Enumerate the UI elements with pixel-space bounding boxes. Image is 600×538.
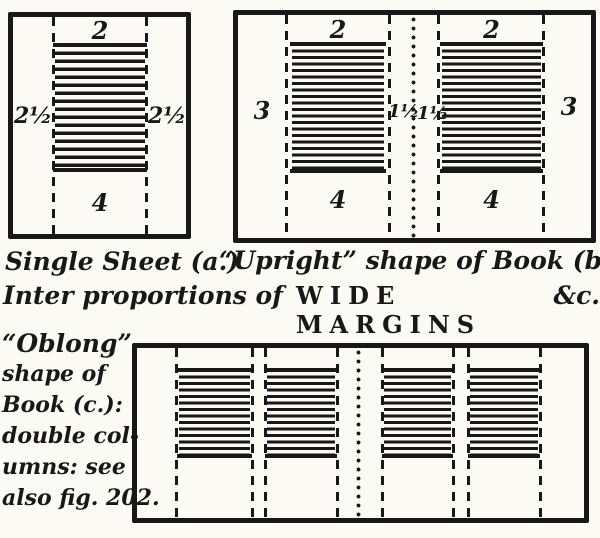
margin-value-bottom: 4	[53, 191, 147, 215]
spine-fold-dotted-line	[411, 15, 416, 238]
margin-value-outer-right: 3	[547, 95, 591, 119]
margin-value-outer-left: 3	[240, 99, 284, 123]
book-page: 2 2½ 2½ 4 2 2 3 3 1½ 1½ 4 4 Single Sheet…	[0, 0, 600, 538]
note-line: umns: see	[2, 452, 132, 483]
caption-wide-margins: WIDE MARGINS	[296, 281, 541, 339]
margin-value-top-right-page: 2	[440, 18, 543, 42]
spine-fold-dotted-line	[356, 348, 361, 518]
diagram-single-sheet: 2 2½ 2½ 4	[8, 12, 191, 239]
note-line: Book (c.):	[2, 390, 132, 421]
margin-value-top-left-page: 2	[290, 18, 386, 42]
diagram-oblong-book	[132, 343, 589, 523]
text-block-hatch-left-page	[290, 42, 386, 173]
column-hatch-3	[382, 368, 453, 458]
note-line: “Oblong”	[2, 328, 132, 359]
note-line: also fig. 202.	[2, 483, 132, 514]
margin-value-top: 2	[53, 19, 147, 43]
caption-interproportions-script: Inter proportions of	[3, 282, 283, 310]
margin-value-inner-right: 1½	[417, 105, 441, 123]
text-block-hatch	[53, 43, 147, 172]
note-line: double col-	[2, 421, 132, 452]
column-hatch-1	[177, 368, 252, 458]
caption-upright-book: “Upright” shape of Book (b.)	[219, 247, 600, 275]
caption-etc: &c.	[554, 282, 600, 310]
text-block-hatch-right-page	[440, 42, 543, 173]
margin-value-bottom-right-page: 4	[440, 188, 543, 212]
margin-value-right: 2½	[148, 105, 185, 127]
margin-guide-dashed-outer-left	[285, 15, 288, 238]
oblong-side-note: “Oblong” shape of Book (c.): double col-…	[2, 328, 132, 514]
margin-value-bottom-left-page: 4	[290, 188, 386, 212]
margin-value-inner-left: 1½	[388, 103, 412, 121]
column-hatch-4	[468, 368, 540, 458]
diagram-upright-book: 2 2 3 3 1½ 1½ 4 4	[233, 10, 596, 243]
column-hatch-2	[265, 368, 337, 458]
margin-value-left: 2½	[14, 105, 51, 127]
note-line: shape of	[2, 359, 132, 390]
caption-single-sheet: Single Sheet (a.)	[5, 248, 239, 276]
margin-guide-dashed-inner-left	[388, 15, 391, 238]
